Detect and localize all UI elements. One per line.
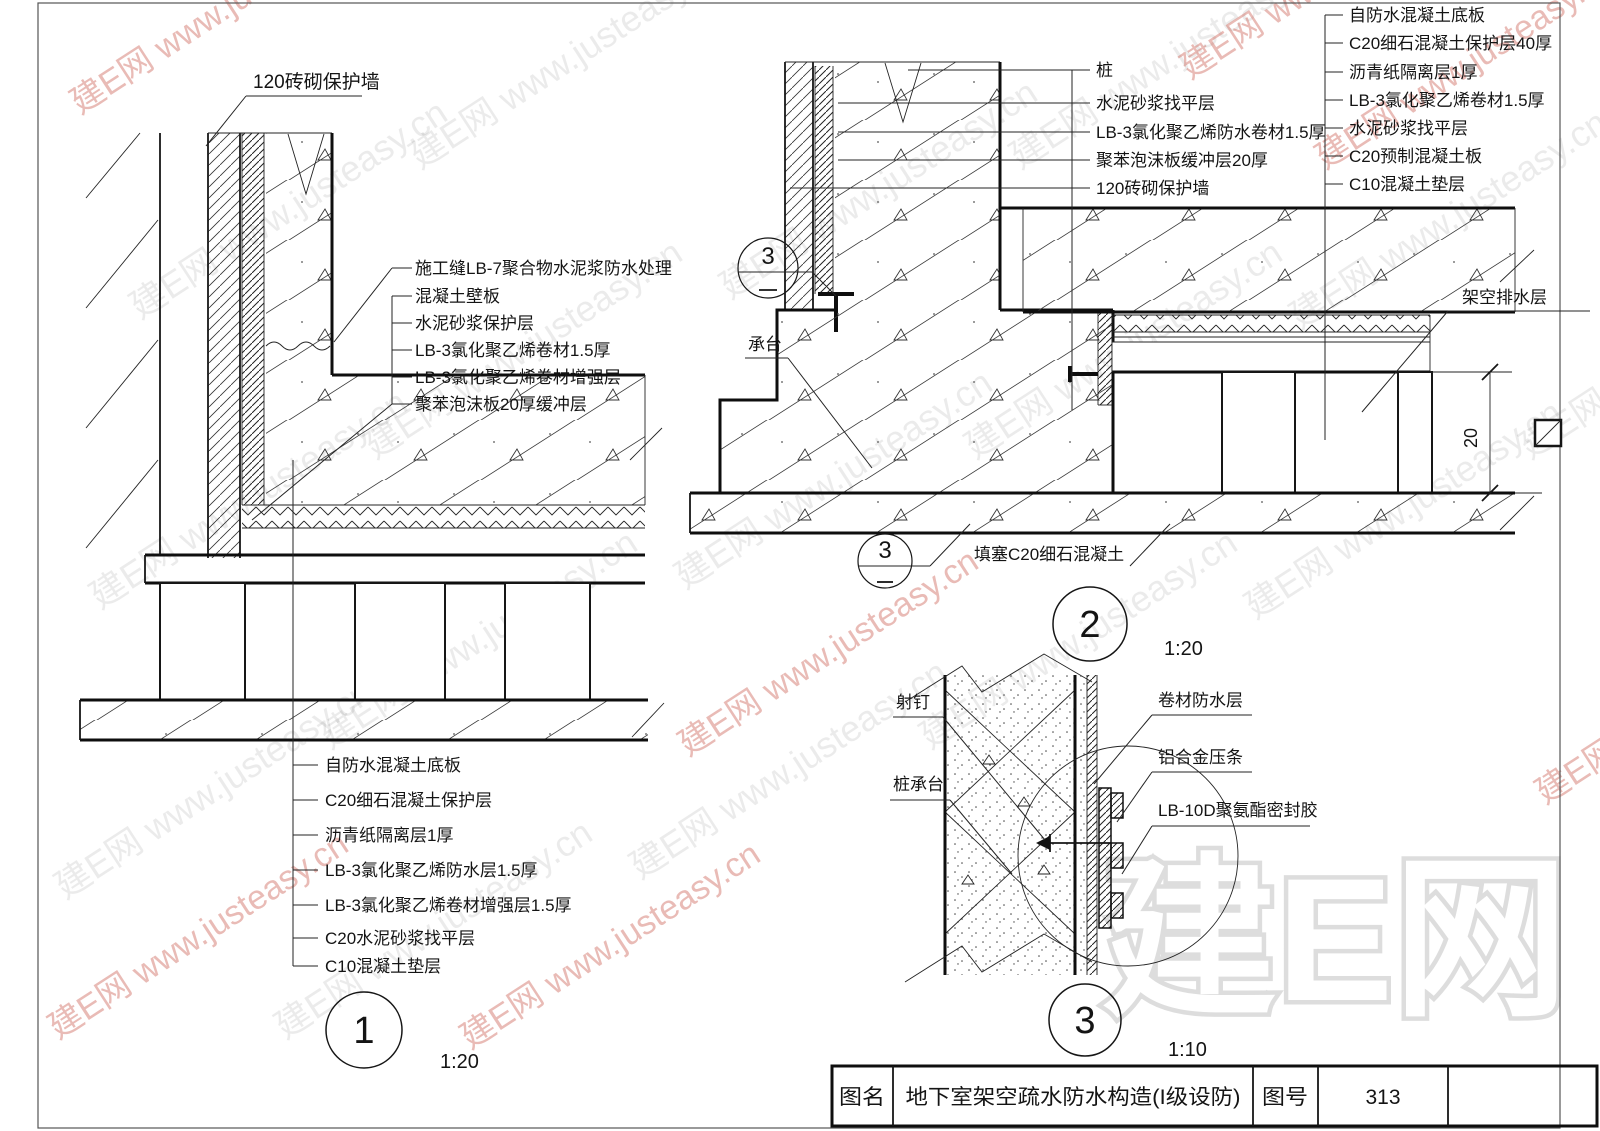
underslab-membrane-band xyxy=(242,505,645,528)
cap-membrane-wrap xyxy=(1098,312,1112,405)
cushion-slab xyxy=(80,700,648,740)
wall-layer-label: LB-3氯化聚乙烯卷材增强层 xyxy=(415,368,621,387)
detail-scale: 1:20 xyxy=(1164,638,1203,660)
wall-layer-label: 水泥砂浆保护层 xyxy=(415,314,534,333)
cushion-slab xyxy=(690,493,1515,533)
drawing-canvas: 建E网 www.justeasy.cn 建E网 www.justeasy.cn … xyxy=(0,0,1600,1131)
right-label: C10混凝土垫层 xyxy=(1349,175,1465,194)
membrane-label: 卷材防水层 xyxy=(1158,691,1243,710)
strip-label: 铝合金压条 xyxy=(1158,748,1243,767)
floor-layer-label: LB-3氯化聚乙烯防水层1.5厚 xyxy=(325,861,538,880)
pile-membrane-strip xyxy=(815,66,833,294)
cad-sheet: 建E网 www.justeasy.cn 建E网 www.justeasy.cn … xyxy=(0,0,1600,1131)
drawing-number-label: 图号 xyxy=(1262,1086,1308,1109)
membrane-strip xyxy=(1087,675,1097,975)
site-logo: 建E网 xyxy=(1102,843,1569,1038)
left-label: 聚苯泡沫板缓冲层20厚 xyxy=(1096,151,1268,170)
soil-hatch xyxy=(86,133,158,548)
pile-brick-wall xyxy=(785,62,813,310)
wall-layer-label: 施工缝LB-7聚合物水泥浆防水处理 xyxy=(415,259,672,278)
ref-bubble-number: 3 xyxy=(761,243,774,270)
detail-number: 2 xyxy=(1079,604,1100,646)
watermark-red-text: 建E网 www.justeasy.cn xyxy=(1529,590,1600,812)
drawing-number-value: 313 xyxy=(1365,1086,1400,1109)
right-label: 自防水混凝土底板 xyxy=(1349,6,1485,25)
right-label: LB-3氯化聚乙烯卷材1.5厚 xyxy=(1349,91,1545,110)
floor-layer-label: LB-3氯化聚乙烯卷材增强层1.5厚 xyxy=(325,896,572,915)
aluminum-strip-profile xyxy=(1099,788,1123,928)
ref-bubble-number: 3 xyxy=(878,537,891,564)
title-block: 图名 地下室架空疏水防水构造(I级设防) 图号 313 xyxy=(832,1066,1597,1126)
support-pier xyxy=(1398,372,1432,493)
sealant-label: LB-10D聚氨酯密封胶 xyxy=(1158,801,1318,820)
right-label: C20预制混凝土板 xyxy=(1349,147,1482,166)
support-pier xyxy=(1222,372,1295,493)
drain-layer-label: 架空排水层 xyxy=(1462,288,1547,307)
right-label: 水泥砂浆找平层 xyxy=(1349,119,1468,138)
detail-number: 3 xyxy=(1074,1000,1095,1042)
fill-label: 填塞C20细石混凝土 xyxy=(974,545,1124,564)
watermark-red-text: 建E网 www.justeasy.cn xyxy=(64,0,377,122)
brick-wall-label: 120砖砌保护墙 xyxy=(253,71,380,93)
pile-cap-label: 桩承台 xyxy=(893,775,944,794)
detail-1-drawing xyxy=(80,133,664,740)
drawing-name-label: 图名 xyxy=(839,1086,885,1109)
left-label: 桩 xyxy=(1096,61,1113,80)
base-slab xyxy=(1023,208,1515,312)
pile-concrete xyxy=(835,62,1000,310)
floor-layer-label: C10混凝土垫层 xyxy=(325,957,441,976)
precast-slab xyxy=(1112,342,1430,372)
wall-layer-label: LB-3氯化聚乙烯卷材1.5厚 xyxy=(415,341,611,360)
detail-scale: 1:20 xyxy=(440,1051,479,1073)
membrane-band xyxy=(1112,315,1430,332)
pile-cap-label: 承台 xyxy=(748,335,782,354)
mortar-strip xyxy=(1077,675,1087,975)
floor-layer-label: C20水泥砂浆找平层 xyxy=(325,929,475,948)
right-label: 沥青纸隔离层1厚 xyxy=(1349,63,1477,82)
support-piers xyxy=(160,583,590,700)
left-label: 水泥砂浆找平层 xyxy=(1096,94,1215,113)
wall-layer-label: 聚苯泡沫板20厚缓冲层 xyxy=(415,395,587,414)
dimension-value: 20 xyxy=(1461,428,1481,448)
floor-layer-label: C20细石混凝土保护层 xyxy=(325,791,492,810)
floor-layer-label: 沥青纸隔离层1厚 xyxy=(325,826,453,845)
right-label: C20细石混凝土保护层40厚 xyxy=(1349,34,1552,53)
leader-line xyxy=(1094,715,1152,784)
nail-label: 射钉 xyxy=(896,693,930,712)
detail-number: 1 xyxy=(353,1010,374,1052)
left-label: 120砖砌保护墙 xyxy=(1096,179,1209,198)
pile-cap-concrete xyxy=(945,675,1075,975)
detail-scale: 1:10 xyxy=(1168,1039,1207,1061)
wall-membrane-layers xyxy=(242,133,264,505)
floor-layer-label: 自防水混凝土底板 xyxy=(325,756,461,775)
watermark-text: 建E网 www.justeasy.cn xyxy=(402,0,734,177)
drawing-name-value: 地下室架空疏水防水构造(I级设防) xyxy=(906,1086,1241,1109)
left-label: LB-3氯化聚乙烯防水卷材1.5厚 xyxy=(1096,123,1326,142)
wall-layer-label: 混凝土壁板 xyxy=(415,287,500,306)
brick-protection-wall xyxy=(208,133,240,558)
